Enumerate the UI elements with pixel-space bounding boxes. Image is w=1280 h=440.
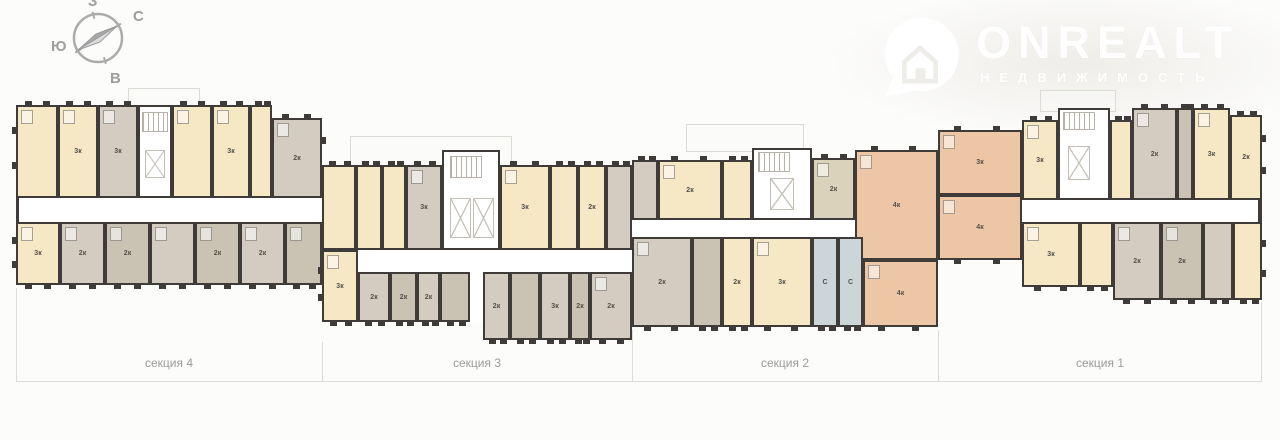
balcony-tick — [954, 126, 961, 130]
section-divider — [632, 330, 633, 381]
balcony-tick — [1188, 300, 1195, 304]
bathroom-block — [1118, 227, 1130, 241]
balcony-tick — [1144, 300, 1151, 304]
apartment-unit[interactable]: 2к — [812, 158, 855, 220]
apartment-unit[interactable]: 2к — [240, 222, 285, 285]
corridor — [470, 272, 483, 322]
elevator-shaft — [145, 150, 165, 178]
apartment-unit[interactable] — [1080, 222, 1113, 287]
apartment-type-label: 2к — [79, 250, 86, 257]
balcony-tick — [584, 161, 591, 165]
apartment-type-label: 3к — [227, 148, 234, 155]
balcony-tick — [489, 340, 496, 344]
balcony-tick — [912, 327, 919, 331]
balcony-tick — [878, 327, 885, 331]
section-divider — [322, 342, 323, 381]
bathroom-block — [757, 242, 769, 256]
balcony-tick — [1034, 287, 1041, 291]
bathroom-block — [860, 155, 872, 169]
apartment-unit[interactable] — [250, 105, 272, 198]
bathroom-block — [290, 227, 302, 241]
compass-north-label: С — [133, 8, 144, 25]
apartment-unit[interactable] — [722, 160, 752, 220]
apartment-type-label: 3к — [74, 148, 81, 155]
balcony-tick — [224, 285, 231, 289]
section-divider — [16, 288, 17, 381]
balcony-tick — [1060, 287, 1067, 291]
balcony-tick — [1101, 287, 1108, 291]
balcony-tick — [954, 260, 961, 264]
apartment-unit[interactable] — [150, 222, 195, 285]
elevator-shaft — [1068, 146, 1090, 180]
elevator-shaft — [450, 198, 471, 238]
apartment-unit[interactable]: 4к — [938, 195, 1022, 260]
bathroom-block — [245, 227, 257, 241]
apartment-type-label: 3к — [1036, 157, 1043, 164]
compass-needle — [78, 26, 117, 50]
apartment-unit[interactable]: 3к — [322, 250, 358, 322]
balcony-tick — [373, 161, 380, 165]
bathroom-block — [65, 227, 77, 241]
section-divider — [1261, 302, 1262, 381]
balcony-tick — [1252, 300, 1259, 304]
apartment-unit[interactable]: 2к — [722, 237, 752, 327]
balcony-tick — [729, 156, 736, 160]
balcony-tick — [345, 322, 352, 326]
balcony-tick — [66, 101, 73, 105]
balcony-tick — [236, 101, 243, 105]
balcony-tick — [422, 322, 429, 326]
balcony-tick — [459, 322, 466, 326]
balcony-tick — [159, 285, 166, 289]
apartment-unit[interactable] — [632, 160, 658, 220]
balcony-tick — [529, 340, 536, 344]
apartment-type-label: 2к — [830, 186, 837, 193]
balcony-tick — [304, 114, 311, 118]
apartment-unit[interactable]: 2к — [658, 160, 722, 220]
apartment-unit[interactable] — [382, 165, 406, 250]
apartment-unit[interactable]: 2к — [358, 272, 390, 322]
balcony-tick — [510, 161, 517, 165]
apartment-unit[interactable] — [550, 165, 578, 250]
apartment-type-label: 2к — [370, 294, 377, 301]
balcony-tick — [180, 101, 187, 105]
bathroom-block — [943, 200, 955, 214]
apartment-unit[interactable] — [322, 165, 356, 250]
apartment-unit[interactable] — [510, 272, 540, 340]
balcony-tick — [711, 327, 718, 331]
balcony-tick — [1262, 270, 1266, 277]
balcony-tick — [89, 285, 96, 289]
balcony-tick — [309, 285, 316, 289]
balcony-tick — [43, 101, 50, 105]
apartment-type-label: 3к — [420, 204, 427, 211]
apartment-unit[interactable] — [440, 272, 470, 322]
corridor — [16, 198, 322, 222]
balcony-tick — [612, 161, 619, 165]
balcony-tick — [12, 261, 16, 268]
balcony-tick — [993, 126, 1000, 130]
bathroom-block — [21, 110, 33, 124]
staircase — [1063, 112, 1095, 130]
balcony-tick — [500, 340, 507, 344]
balcony-tick — [854, 327, 861, 331]
balcony-tick — [638, 156, 645, 160]
balcony-tick — [1045, 116, 1052, 120]
apartment-unit[interactable]: 4к — [855, 150, 938, 260]
apartment-unit[interactable] — [285, 222, 322, 285]
apartment-unit[interactable]: 2к — [272, 118, 322, 198]
section-label: секция 3 — [453, 356, 501, 370]
apartment-type-label: 2к — [293, 155, 300, 162]
bathroom-block — [277, 123, 289, 137]
apartment-unit[interactable]: 3к — [1022, 120, 1058, 200]
staircase — [758, 152, 790, 172]
balcony-tick — [1217, 104, 1224, 108]
staircase — [142, 112, 168, 132]
balcony-tick — [1123, 300, 1130, 304]
balcony-tick — [69, 285, 76, 289]
apartment-unit[interactable]: 2к — [1161, 222, 1203, 300]
bathroom-block — [63, 110, 75, 124]
wall-segment — [16, 196, 19, 224]
balcony-tick — [322, 137, 326, 144]
apartment-type-label: С — [822, 279, 827, 286]
apartment-type-label: 2к — [686, 187, 693, 194]
balcony-tick — [44, 285, 51, 289]
balcony-tick — [559, 340, 566, 344]
apartment-unit[interactable] — [1203, 222, 1233, 300]
bathroom-block — [21, 227, 33, 241]
balcony-tick — [596, 161, 603, 165]
bathroom-block — [663, 165, 675, 179]
balcony-tick — [993, 260, 1000, 264]
balcony-tick — [532, 161, 539, 165]
balcony-tick — [362, 161, 369, 165]
bathroom-block — [1198, 113, 1210, 127]
balcony-tick — [114, 285, 121, 289]
balcony-tick — [1250, 111, 1257, 115]
apartment-unit[interactable] — [172, 105, 212, 198]
balcony-tick — [1210, 300, 1217, 304]
balcony-tick — [388, 161, 395, 165]
balcony-tick — [829, 327, 836, 331]
balcony-tick — [134, 285, 141, 289]
compass-south-label: Ю — [51, 38, 66, 55]
apartment-unit[interactable]: 2к — [1113, 222, 1161, 300]
balcony-tick — [821, 154, 828, 158]
balcony-tick — [249, 285, 256, 289]
balcony-tick — [1141, 104, 1148, 108]
balcony-tick — [699, 327, 706, 331]
balcony-tick — [365, 322, 372, 326]
balcony-tick — [344, 161, 351, 165]
balcony-tick — [583, 340, 590, 344]
balcony-tick — [844, 327, 851, 331]
apartment-unit[interactable]: 4к — [863, 260, 938, 327]
corridor — [322, 250, 632, 272]
apartment-unit[interactable]: С — [838, 237, 863, 327]
balcony-tick — [12, 127, 16, 134]
apartment-unit[interactable] — [16, 105, 58, 198]
apartment-unit[interactable]: 3к — [752, 237, 812, 327]
apartment-unit[interactable]: 2к — [60, 222, 105, 285]
bathroom-block — [411, 170, 423, 184]
logo-subtitle: НЕДВИЖИМОСТЬ — [980, 70, 1239, 85]
bathroom-block — [103, 110, 115, 124]
balcony-tick — [179, 285, 186, 289]
apartment-unit[interactable]: 3к — [98, 105, 138, 198]
balcony-tick — [1115, 116, 1122, 120]
section-label: секция 4 — [145, 356, 193, 370]
balcony-tick — [397, 161, 404, 165]
balcony-tick — [1030, 116, 1037, 120]
apartment-unit[interactable]: 2к — [570, 272, 590, 340]
bathroom-block — [868, 265, 880, 279]
balcony-tick — [318, 294, 322, 301]
apartment-unit[interactable]: 2к — [195, 222, 240, 285]
apartment-type-label: 3к — [336, 283, 343, 290]
apartment-unit[interactable]: 2к — [105, 222, 150, 285]
apartment-unit[interactable] — [1233, 222, 1262, 300]
balcony-tick — [1262, 240, 1266, 247]
balcony-tick — [575, 340, 582, 344]
balcony-tick — [84, 101, 91, 105]
apartment-type-label: 3к — [1208, 151, 1215, 158]
apartment-type-label: 3к — [114, 148, 121, 155]
apartment-unit[interactable]: 2к — [417, 272, 440, 322]
balcony-tick — [1170, 300, 1177, 304]
balcony-tick — [1262, 167, 1266, 174]
balcony-tick — [871, 146, 878, 150]
balcony-tick — [791, 327, 798, 331]
balcony-tick — [568, 161, 575, 165]
bathroom-block — [817, 163, 829, 177]
apartment-type-label: 2к — [658, 279, 665, 286]
balcony-tick — [106, 101, 113, 105]
balcony-tick — [764, 327, 771, 331]
apartment-unit[interactable]: 2к — [632, 237, 692, 327]
apartment-type-label: 2к — [576, 303, 583, 310]
apartment-type-label: 3к — [976, 159, 983, 166]
balcony-tick — [1124, 116, 1131, 120]
elevator-shaft — [770, 178, 794, 210]
apartment-unit[interactable]: 3к — [500, 165, 550, 250]
balcony-tick — [517, 340, 524, 344]
apartment-type-label: 4к — [897, 290, 904, 297]
balcony-tick — [1161, 104, 1168, 108]
balcony-tick — [623, 161, 630, 165]
compass-east-label: В — [110, 70, 121, 87]
balcony-tick — [25, 101, 32, 105]
balcony-tick — [255, 101, 262, 105]
balcony-tick — [269, 285, 276, 289]
balcony-tick — [264, 101, 271, 105]
apartment-type-label: 2к — [124, 250, 131, 257]
balcony-tick — [700, 156, 707, 160]
corridor — [632, 220, 855, 237]
apartment-unit[interactable] — [1110, 120, 1132, 200]
balcony-tick — [671, 156, 678, 160]
apartment-unit[interactable]: 3к — [1022, 222, 1080, 287]
bathroom-block — [217, 110, 229, 124]
balcony-tick — [617, 340, 624, 344]
balcony-tick — [741, 327, 748, 331]
section-label: секция 2 — [761, 356, 809, 370]
apartment-unit[interactable]: 3к — [938, 130, 1022, 195]
apartment-type-label: 3к — [1047, 251, 1054, 258]
apartment-unit[interactable]: 3к — [1193, 108, 1230, 200]
apartment-type-label: 2к — [1151, 151, 1158, 158]
apartment-type-label: 3к — [778, 279, 785, 286]
balcony-tick — [1222, 300, 1229, 304]
bathroom-block — [1027, 227, 1039, 241]
apartment-type-label: 3к — [34, 250, 41, 257]
balcony-tick — [204, 285, 211, 289]
section-divider — [938, 330, 939, 381]
bathroom-block — [1166, 227, 1178, 241]
apartment-type-label: 3к — [551, 303, 558, 310]
apartment-type-label: 2к — [1178, 258, 1185, 265]
apartment-unit[interactable]: 2к — [1230, 115, 1262, 200]
balcony-tick — [671, 327, 678, 331]
balcony-tick — [432, 322, 439, 326]
apartment-unit[interactable]: 2к — [1132, 108, 1177, 200]
compass-west-label: З — [88, 0, 97, 10]
apartment-unit[interactable]: С — [812, 237, 838, 327]
wall-segment — [1258, 198, 1262, 224]
balcony-tick — [644, 327, 651, 331]
balcony-tick — [1087, 287, 1094, 291]
balcony-tick — [25, 285, 32, 289]
balcony-tick — [220, 101, 227, 105]
balcony-tick — [396, 322, 403, 326]
apartment-unit[interactable]: 2к — [390, 272, 417, 322]
elevator-shaft — [473, 198, 494, 238]
apartment-type-label: 4к — [893, 202, 900, 209]
balcony-tick — [1240, 300, 1247, 304]
balcony-tick — [407, 322, 414, 326]
section-label: секция 1 — [1076, 356, 1124, 370]
balcony-tick — [318, 267, 322, 274]
apartment-unit[interactable] — [356, 165, 382, 250]
balcony-tick — [429, 161, 436, 165]
bathroom-block — [595, 277, 607, 291]
apartment-type-label: 2к — [588, 204, 595, 211]
balcony-tick — [1237, 111, 1244, 115]
balcony-tick — [12, 162, 16, 169]
balcony-tick — [447, 322, 454, 326]
bathroom-block — [155, 227, 167, 241]
balcony-tick — [818, 327, 825, 331]
compass-rose: З С Ю В — [38, 0, 158, 96]
apartment-unit[interactable]: 3к — [16, 222, 60, 285]
apartment-unit[interactable]: 3к — [406, 165, 442, 250]
apartment-type-label: С — [848, 279, 853, 286]
bathroom-block — [1137, 113, 1149, 127]
apartment-type-label: 2к — [400, 294, 407, 301]
footer-baseline — [16, 381, 1262, 382]
bathroom-block — [505, 170, 517, 184]
balcony-tick — [124, 101, 131, 105]
bathroom-block — [943, 135, 955, 149]
balcony-tick — [329, 161, 336, 165]
balcony-tick — [282, 114, 289, 118]
apartment-unit[interactable]: 3к — [212, 105, 250, 198]
balcony-tick — [547, 340, 554, 344]
balcony-tick — [293, 285, 300, 289]
balcony-tick — [414, 161, 421, 165]
balcony-tick — [198, 101, 205, 105]
corridor — [1022, 200, 1262, 222]
balcony-tick — [12, 237, 16, 244]
bathroom-block — [177, 110, 189, 124]
balcony-tick — [1201, 104, 1208, 108]
apartment-unit[interactable]: 3к — [58, 105, 98, 198]
balcony-tick — [729, 327, 736, 331]
apartment-type-label: 2к — [607, 303, 614, 310]
apartment-type-label: 2к — [214, 250, 221, 257]
staircase — [450, 156, 482, 178]
bathroom-block — [110, 227, 122, 241]
apartment-type-label: 2к — [425, 294, 432, 301]
balcony-tick — [378, 322, 385, 326]
bathroom-block — [1027, 125, 1039, 139]
apartment-unit[interactable]: 2к — [578, 165, 606, 250]
apartment-unit[interactable] — [692, 237, 722, 327]
balcony-tick — [840, 154, 847, 158]
balcony-tick — [741, 156, 748, 160]
apartment-type-label: 4к — [976, 224, 983, 231]
floorplan-image: З С Ю В ONREALT НЕДВИЖИМОСТЬ 3к3к3к2к3к2… — [0, 0, 1280, 440]
apartment-unit[interactable]: 3к — [540, 272, 570, 340]
apartment-type-label: 2к — [1242, 154, 1249, 161]
apartment-type-label: 2к — [733, 279, 740, 286]
apartment-type-label: 3к — [521, 204, 528, 211]
balcony-tick — [330, 322, 337, 326]
balcony-tick — [556, 161, 563, 165]
apartment-type-label: 2к — [493, 303, 500, 310]
bathroom-block — [637, 242, 649, 256]
apartment-unit[interactable] — [606, 165, 632, 250]
apartment-type-label: 2к — [259, 250, 266, 257]
balcony-tick — [1262, 135, 1266, 142]
logo-title: ONREALT — [976, 14, 1239, 72]
apartment-unit[interactable] — [1177, 108, 1193, 200]
apartment-unit[interactable]: 2к — [483, 272, 510, 340]
bathroom-block — [327, 255, 339, 269]
apartment-unit[interactable]: 2к — [590, 272, 632, 340]
balcony-tick — [909, 146, 916, 150]
bathroom-block — [200, 227, 212, 241]
balcony-tick — [649, 156, 656, 160]
balcony-tick — [599, 340, 606, 344]
house-pin-icon — [872, 14, 968, 106]
apartment-type-label: 2к — [1133, 258, 1140, 265]
